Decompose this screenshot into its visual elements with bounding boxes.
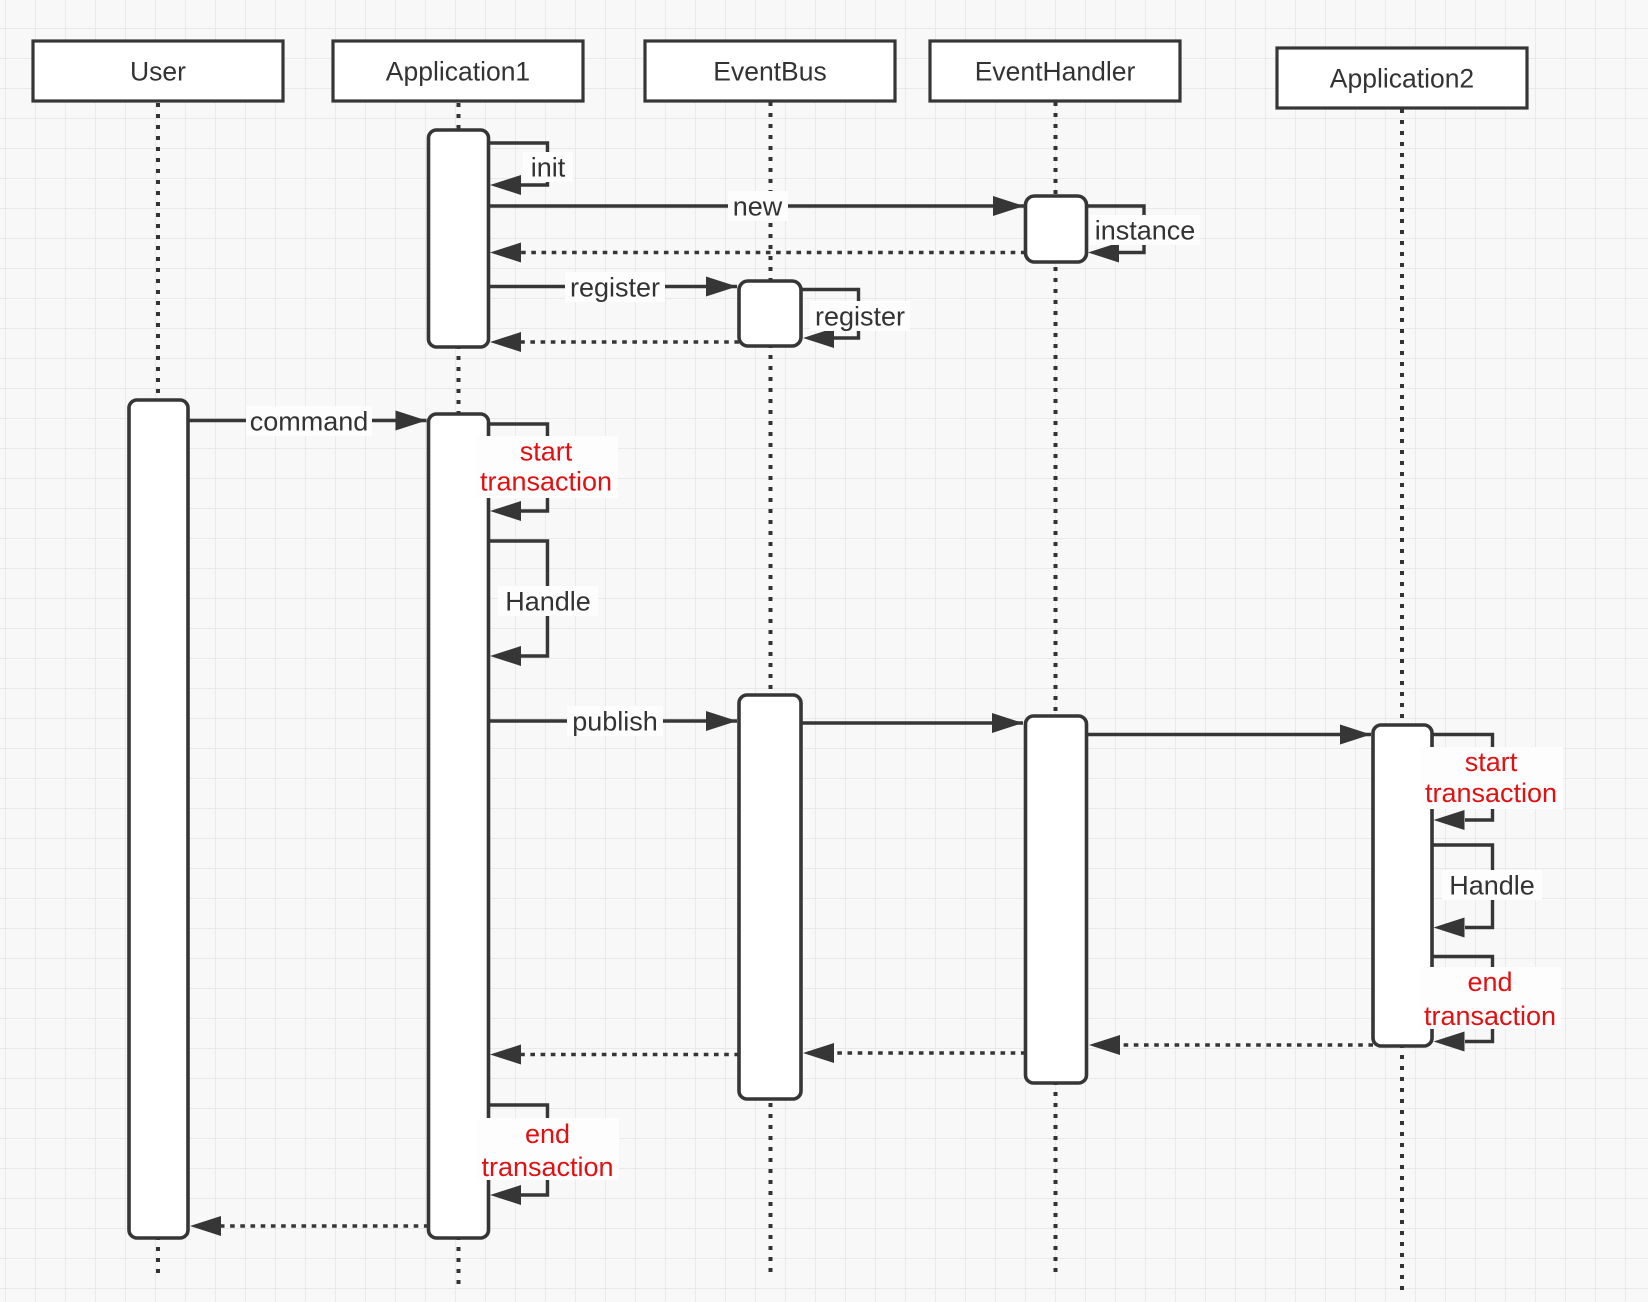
svg-text:Handle: Handle (1449, 871, 1535, 901)
svg-text:Application2: Application2 (1330, 64, 1474, 94)
svg-text:instance: instance (1095, 216, 1196, 246)
svg-text:init: init (531, 153, 566, 183)
svg-text:publish: publish (572, 707, 658, 737)
svg-text:start: start (1465, 747, 1518, 777)
svg-text:User: User (130, 57, 186, 87)
svg-text:transaction: transaction (480, 467, 612, 497)
svg-text:command: command (250, 407, 369, 437)
svg-text:transaction: transaction (1424, 1001, 1556, 1031)
svg-text:EventHandler: EventHandler (975, 57, 1136, 87)
svg-text:end: end (1467, 967, 1512, 997)
svg-text:transaction: transaction (1425, 778, 1557, 808)
svg-text:register: register (815, 302, 905, 332)
svg-text:transaction: transaction (481, 1152, 613, 1182)
svg-text:register: register (570, 273, 660, 303)
svg-text:EventBus: EventBus (713, 57, 826, 87)
svg-text:end: end (525, 1119, 570, 1149)
svg-text:new: new (733, 192, 783, 222)
svg-text:Application1: Application1 (386, 57, 530, 87)
svg-text:Handle: Handle (505, 587, 591, 617)
svg-text:start: start (520, 437, 573, 467)
